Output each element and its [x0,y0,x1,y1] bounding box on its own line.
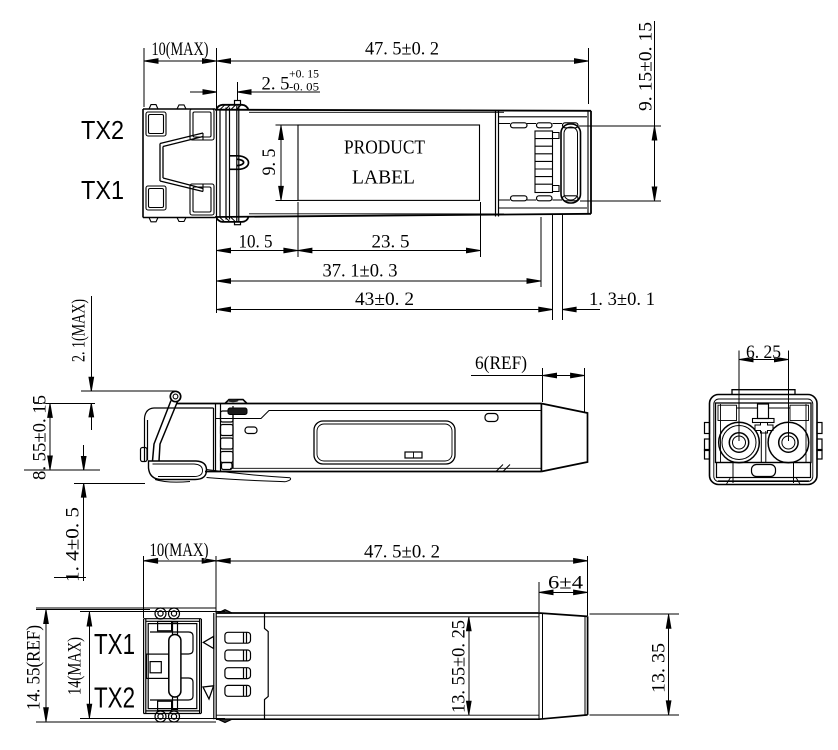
svg-text:6(REF): 6(REF) [475,353,527,374]
svg-text:37. 1±0. 3: 37. 1±0. 3 [323,261,398,282]
svg-text:47. 5±0. 2: 47. 5±0. 2 [364,542,440,563]
svg-text:1. 4±0. 5: 1. 4±0. 5 [63,507,84,582]
svg-text:PRODUCT: PRODUCT [344,137,425,159]
svg-text:2. 1(MAX): 2. 1(MAX) [69,299,90,362]
svg-text:TX2: TX2 [94,683,135,715]
svg-text:+0. 15: +0. 15 [289,67,319,81]
svg-text:-0. 05: -0. 05 [289,80,319,94]
svg-text:10(MAX): 10(MAX) [152,39,209,60]
svg-text:13. 55±0. 25: 13. 55±0. 25 [449,620,470,713]
svg-text:47. 5±0. 2: 47. 5±0. 2 [365,39,439,60]
svg-text:1. 3±0. 1: 1. 3±0. 1 [589,289,655,310]
svg-text:14. 55(REF): 14. 55(REF) [24,625,45,710]
svg-text:8. 55±0. 15: 8. 55±0. 15 [30,395,51,480]
svg-text:TX2: TX2 [81,115,124,145]
svg-text:9. 15±0. 15: 9. 15±0. 15 [636,22,657,111]
svg-text:10(MAX): 10(MAX) [150,540,209,561]
svg-text:6±4: 6±4 [548,573,584,594]
svg-text:LABEL: LABEL [352,167,415,189]
svg-text:6. 25: 6. 25 [746,342,781,363]
svg-text:10. 5: 10. 5 [239,232,273,253]
svg-text:TX1: TX1 [94,629,135,661]
svg-text:23. 5: 23. 5 [372,232,410,253]
svg-text:14(MAX): 14(MAX) [65,637,86,695]
svg-text:TX1: TX1 [81,175,124,205]
svg-text:9. 5: 9. 5 [259,149,280,176]
svg-text:43±0. 2: 43±0. 2 [355,289,414,310]
svg-text:2. 5: 2. 5 [262,74,290,95]
svg-text:13. 35: 13. 35 [649,643,670,693]
